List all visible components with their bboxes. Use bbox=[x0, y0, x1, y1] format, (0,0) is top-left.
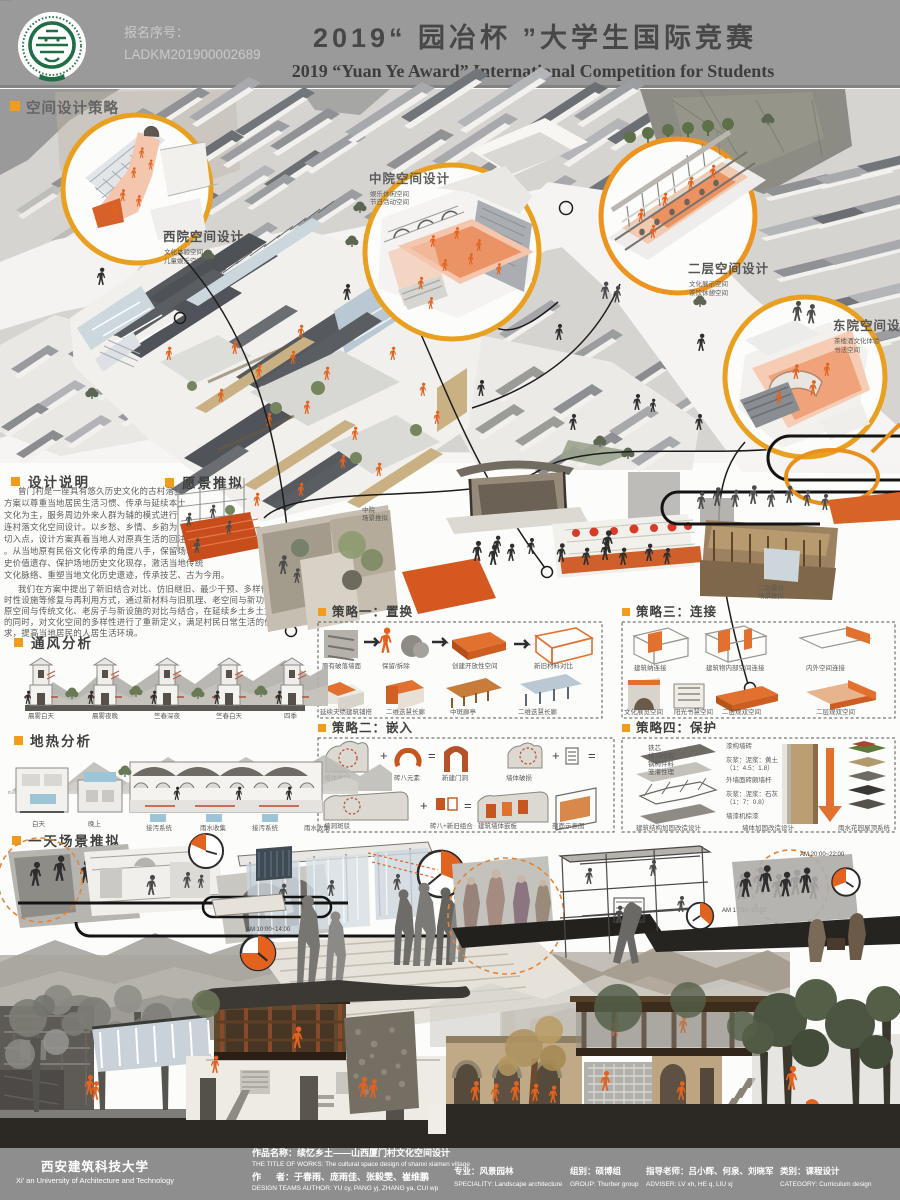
svg-text:连村落文化空间设计。以乡愁、乡情、乡韵为: 连村落文化空间设计。以乡愁、乡情、乡韵为 bbox=[4, 522, 178, 532]
svg-text:文化脉络、重塑当地文化历史遗迹，传承技艺、古为今用。: 文化脉络、重塑当地文化历史遗迹，传承技艺、古为今用。 bbox=[4, 570, 230, 580]
svg-text:阳光书慧空间: 阳光书慧空间 bbox=[674, 707, 713, 716]
svg-text:AM 10:00~14:00: AM 10:00~14:00 bbox=[246, 927, 291, 933]
svg-text:（1：7：0.8）: （1：7：0.8） bbox=[726, 798, 768, 806]
svg-text:中院: 中院 bbox=[362, 505, 376, 514]
svg-text:笼灌性理: 笼灌性理 bbox=[648, 767, 675, 776]
svg-text:晨雾夜晚: 晨雾夜晚 bbox=[92, 711, 119, 720]
svg-text:中斑廊亭: 中斑廊亭 bbox=[450, 707, 477, 716]
svg-text:儿童娱乐空间: 儿童娱乐空间 bbox=[164, 256, 203, 265]
svg-text:二层空间设计: 二层空间设计 bbox=[688, 261, 769, 276]
svg-text:场景推拟: 场景推拟 bbox=[758, 591, 785, 600]
svg-text:接汚系统: 接汚系统 bbox=[146, 823, 173, 832]
svg-text:LADKM201900002689: LADKM201900002689 bbox=[124, 47, 261, 62]
svg-text:曾门村是一座具有悠久历史文化的古村落。: 曾门村是一座具有悠久历史文化的古村落。 bbox=[18, 486, 183, 496]
svg-text:创建开放性空间: 创建开放性空间 bbox=[452, 661, 498, 670]
svg-text:新建门洞: 新建门洞 bbox=[442, 773, 469, 782]
svg-text:建筑纳连接: 建筑纳连接 bbox=[634, 663, 667, 672]
svg-text:晨雾白天: 晨雾白天 bbox=[28, 711, 55, 720]
svg-text:方案以尊重当地居民生活习惯、传承与延续本土: 方案以尊重当地居民生活习惯、传承与延续本土 bbox=[4, 498, 186, 508]
svg-text:=: = bbox=[588, 748, 596, 763]
svg-text:（1：4.5：1.8）: （1：4.5：1.8） bbox=[726, 764, 774, 772]
svg-text:报名序号：: 报名序号： bbox=[124, 25, 189, 40]
svg-text:类别：课程设计: 类别：课程设计 bbox=[780, 1166, 840, 1176]
svg-text:。从当地原有民俗文化传承的角度八手，保留场地历: 。从当地原有民俗文化传承的角度八手，保留场地历 bbox=[4, 546, 204, 556]
svg-text:钢构件料: 钢构件料 bbox=[648, 759, 675, 768]
svg-text:策略三：连接: 策略三：连接 bbox=[636, 604, 717, 619]
svg-text:+: + bbox=[552, 748, 560, 763]
svg-text:策略四：保护: 策略四：保护 bbox=[636, 720, 717, 735]
svg-text:铁芯: 铁芯 bbox=[648, 743, 662, 752]
svg-text:墙漆机棕漆: 墙漆机棕漆 bbox=[726, 811, 759, 820]
svg-text:雨水收集: 雨水收集 bbox=[200, 823, 227, 832]
svg-text:中院空间设计: 中院空间设计 bbox=[369, 171, 450, 186]
svg-text:+: + bbox=[380, 748, 388, 763]
svg-text:文化展示空间: 文化展示空间 bbox=[689, 279, 728, 288]
svg-text:组别：硕博组: 组别：硕博组 bbox=[570, 1166, 622, 1176]
svg-text:延续夫绩建筑铺搭: 延续夫绩建筑铺搭 bbox=[320, 707, 373, 716]
svg-text:建筑墙体嵌板: 建筑墙体嵌板 bbox=[478, 821, 518, 830]
svg-text:CATEGORY: Curriculum design: CATEGORY: Curriculum design bbox=[780, 1181, 872, 1188]
svg-text:作品名称：续忆乡土——山西厦门村文化空间设计: 作品名称：续忆乡土——山西厦门村文化空间设计 bbox=[252, 1147, 450, 1158]
svg-text:二维迭慧长廊: 二维迭慧长廊 bbox=[518, 707, 558, 716]
svg-text:新旧材料对比: 新旧材料对比 bbox=[534, 661, 574, 670]
svg-text:雨水收集: 雨水收集 bbox=[304, 823, 331, 832]
svg-text:雨水花园屋顶系统: 雨水花园屋顶系统 bbox=[838, 823, 891, 832]
svg-text:砖八元素: 砖八元素 bbox=[394, 773, 421, 782]
svg-text:=: = bbox=[464, 798, 472, 813]
svg-text:墙体破损: 墙体破损 bbox=[506, 773, 533, 782]
svg-text:四季: 四季 bbox=[284, 711, 298, 720]
svg-text:=: = bbox=[428, 748, 436, 763]
svg-text:AM 20:00~22:00: AM 20:00~22:00 bbox=[800, 852, 845, 858]
svg-text:二层观双空间: 二层观双空间 bbox=[722, 707, 761, 716]
svg-text:竺春深夜: 竺春深夜 bbox=[154, 711, 181, 720]
svg-text:白天: 白天 bbox=[32, 819, 46, 828]
svg-text:专业：风景园林: 专业：风景园林 bbox=[454, 1166, 514, 1176]
svg-text:茶饮休憩空间: 茶饮休憩空间 bbox=[689, 288, 728, 297]
svg-text:二层观双空间: 二层观双空间 bbox=[816, 707, 855, 716]
svg-text:二层露台: 二层露台 bbox=[758, 583, 784, 592]
svg-text:东院空间设计: 东院空间设计 bbox=[833, 318, 900, 333]
svg-text:节日活动空间: 节日活动空间 bbox=[370, 197, 409, 206]
svg-text:我们在方案中提出了新旧结合对比、仿旧继旧、最少干预、多样性暂: 我们在方案中提出了新旧结合对比、仿旧继旧、最少干预、多样性暂 bbox=[18, 584, 278, 594]
svg-text:保留/拆除: 保留/拆除 bbox=[382, 661, 410, 670]
svg-text:内外空间连接: 内外空间连接 bbox=[806, 663, 846, 672]
svg-text:通风分析: 通风分析 bbox=[31, 635, 93, 651]
svg-text:时性设施等修复与再利用方式，通过新材料与旧肌理、老空间与新功: 时性设施等修复与再利用方式，通过新材料与旧肌理、老空间与新功能、 bbox=[4, 595, 282, 605]
svg-text:2019“ 园冶杯 ”大学生国际竞赛: 2019“ 园冶杯 ”大学生国际竞赛 bbox=[313, 22, 757, 53]
svg-text:原空间与传统文化、老房子与新设施的对比与结合，在延续乡土乡土: 原空间与传统文化、老房子与新设施的对比与结合，在延续乡土乡土文化 bbox=[4, 606, 282, 616]
svg-text:策略二：嵌入: 策略二：嵌入 bbox=[332, 720, 413, 735]
svg-text:切入点，设计方案真着当地人对原真生活的回注出发: 切入点，设计方案真着当地人对原真生活的回注出发 bbox=[4, 534, 204, 544]
svg-text:灰浆：泥浆：黄土: 灰浆：泥浆：黄土 bbox=[726, 755, 779, 764]
svg-text:Xi' an University of Architect: Xi' an University of Architecture and Te… bbox=[16, 1176, 174, 1185]
svg-text:书法空间: 书法空间 bbox=[834, 345, 860, 354]
svg-text:指导老师：吕小辉、何泉、刘晓军: 指导老师：吕小辉、何泉、刘晓军 bbox=[646, 1166, 774, 1176]
svg-text:竺春白天: 竺春白天 bbox=[216, 711, 243, 720]
svg-text:文化为主，服务周边外来人群为辅的模式进行: 文化为主，服务周边外来人群为辅的模式进行 bbox=[4, 510, 178, 520]
svg-text:策略一：置换: 策略一：置换 bbox=[332, 604, 413, 619]
svg-text:SPECIALITY: Landscape architec: SPECIALITY: Landscape architecture bbox=[454, 1181, 563, 1188]
svg-text:THE TITLE OF WORKS: The cultu: THE TITLE OF WORKS: The cultural space d… bbox=[252, 1161, 470, 1168]
svg-text:作 者：于春雨、庞雨佳、张毅雯、崔维鹏: 作 者：于春雨、庞雨佳、张毅雯、崔维鹏 bbox=[252, 1171, 429, 1182]
svg-text:地热分析: 地热分析 bbox=[30, 733, 92, 749]
svg-text:+: + bbox=[420, 798, 428, 813]
svg-text:砖八+新旧组合: 砖八+新旧组合 bbox=[430, 821, 473, 830]
svg-text:娱乐休闲空间: 娱乐休闲空间 bbox=[370, 189, 409, 198]
svg-text:场景推拟: 场景推拟 bbox=[362, 513, 389, 522]
svg-text:漆构墙砖: 漆构墙砖 bbox=[726, 741, 753, 750]
svg-text:晚上: 晚上 bbox=[88, 819, 102, 828]
svg-text:接汚系统: 接汚系统 bbox=[252, 823, 279, 832]
svg-text:史价值遗存、保护场地历史文化现存，激活当地传统: 史价值遗存、保护场地历史文化现存，激活当地传统 bbox=[4, 558, 204, 568]
svg-text:文化展览空间: 文化展览空间 bbox=[624, 707, 663, 716]
svg-text:建筑结构加固改造设计: 建筑结构加固改造设计 bbox=[636, 823, 702, 832]
svg-text:西院空间设计: 西院空间设计 bbox=[163, 229, 244, 244]
svg-text:DESIGN TEAMS AUTHOR: YU cy, PA: DESIGN TEAMS AUTHOR: YU cy, PANG yj, ZHA… bbox=[252, 1185, 439, 1192]
svg-text:灰浆：泥浆：石灰: 灰浆：泥浆：石灰 bbox=[726, 789, 779, 798]
svg-text:ADVISER: LV xh, HE q, LIU xj: ADVISER: LV xh, HE q, LIU xj bbox=[646, 1181, 733, 1188]
svg-text:GROUP: Thurber group: GROUP: Thurber group bbox=[570, 1181, 639, 1188]
svg-text:茶楼酒文化体验: 茶楼酒文化体验 bbox=[834, 336, 880, 345]
svg-text:二维迭慧长廊: 二维迭慧长廊 bbox=[386, 707, 426, 716]
svg-text:外墙面砖颇墙杆: 外墙面砖颇墙杆 bbox=[726, 775, 772, 784]
svg-text:楼顶结构: 楼顶结构 bbox=[648, 751, 675, 760]
svg-text:建筑物内部空间连接: 建筑物内部空间连接 bbox=[706, 663, 765, 672]
svg-text:剖面示意图: 剖面示意图 bbox=[552, 821, 585, 830]
svg-text:空间设计策略: 空间设计策略 bbox=[26, 99, 119, 117]
svg-text:文化体验空间: 文化体验空间 bbox=[164, 247, 203, 256]
svg-text:的同时，对文化空间的多样性进行了重新定义，满足村民日常生活的: 的同时，对文化空间的多样性进行了重新定义，满足村民日常生活的便利需 bbox=[4, 617, 290, 627]
svg-text:墙体加固改造设计: 墙体加固改造设计 bbox=[742, 823, 795, 832]
svg-text:西安建筑科技大学: 西安建筑科技大学 bbox=[41, 1159, 149, 1174]
